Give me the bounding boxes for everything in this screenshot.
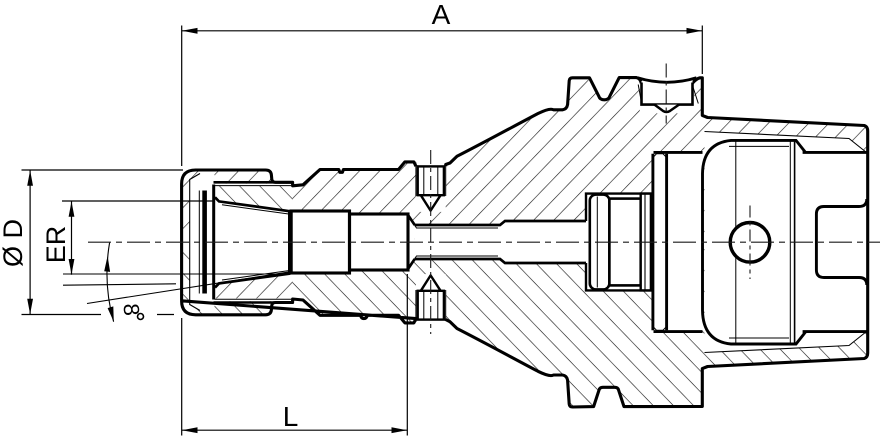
svg-text:8: 8 <box>119 303 145 317</box>
svg-text:L: L <box>283 401 299 432</box>
svg-text:Ø D: Ø D <box>0 219 28 267</box>
svg-text:A: A <box>432 0 451 30</box>
svg-text:ER: ER <box>41 226 71 264</box>
